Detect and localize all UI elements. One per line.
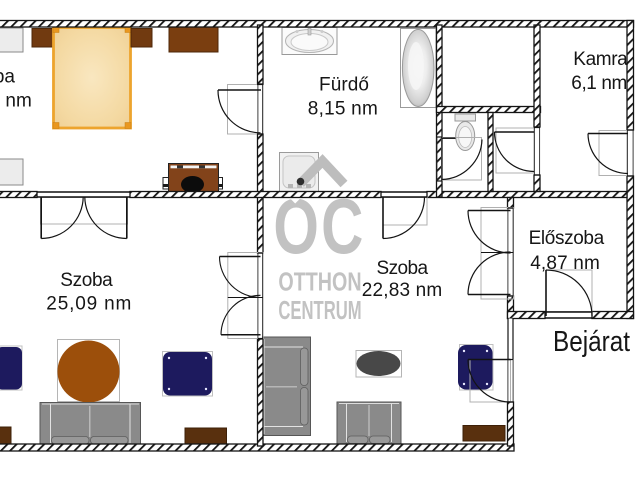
svg-text:nm: nm — [5, 90, 31, 111]
svg-text:22,83 nm: 22,83 nm — [362, 280, 443, 301]
svg-text:CENTRUM: CENTRUM — [278, 296, 361, 325]
svg-text:25,09 nm: 25,09 nm — [46, 294, 131, 315]
svg-text:Előszoba: Előszoba — [529, 228, 605, 249]
svg-text:Szoba: Szoba — [377, 258, 429, 279]
svg-text:4,87 nm: 4,87 nm — [530, 253, 600, 274]
svg-text:ba: ba — [0, 67, 15, 88]
svg-text:Szoba: Szoba — [60, 270, 113, 291]
svg-text:Kamra: Kamra — [573, 49, 628, 70]
svg-text:Bejárat: Bejárat — [553, 326, 630, 358]
svg-text:Fürdő: Fürdő — [319, 75, 369, 96]
svg-text:8,15 nm: 8,15 nm — [308, 99, 378, 120]
svg-text:6,1 nm: 6,1 nm — [571, 73, 627, 94]
svg-text:OTTHON: OTTHON — [278, 267, 361, 296]
